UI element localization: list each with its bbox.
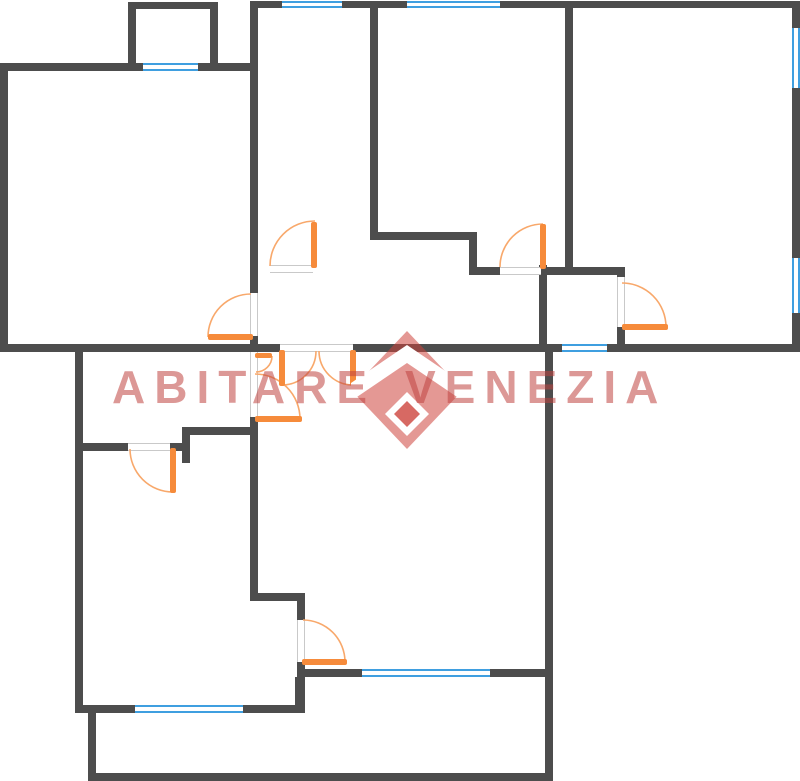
door-swing-arc	[130, 449, 173, 492]
door-swing-arc	[622, 283, 666, 327]
door-leaf	[540, 224, 546, 269]
door-leaf	[208, 334, 253, 340]
door-swing-arc	[270, 221, 315, 266]
door-leaf	[622, 324, 668, 330]
watermark-abitare: ABITARE	[112, 360, 376, 414]
door-leaf	[255, 416, 302, 422]
door-leaf	[302, 659, 347, 665]
door-swing-arc	[500, 224, 543, 267]
door-swing-arc	[303, 620, 345, 662]
door-swing-arc	[208, 294, 251, 337]
floor-plan: ABITARE VENEZIA	[0, 0, 800, 781]
watermark-venezia: VENEZIA	[405, 360, 667, 414]
door-leaf	[170, 448, 176, 493]
door-leaf	[311, 222, 317, 268]
door-leaf	[255, 353, 272, 358]
